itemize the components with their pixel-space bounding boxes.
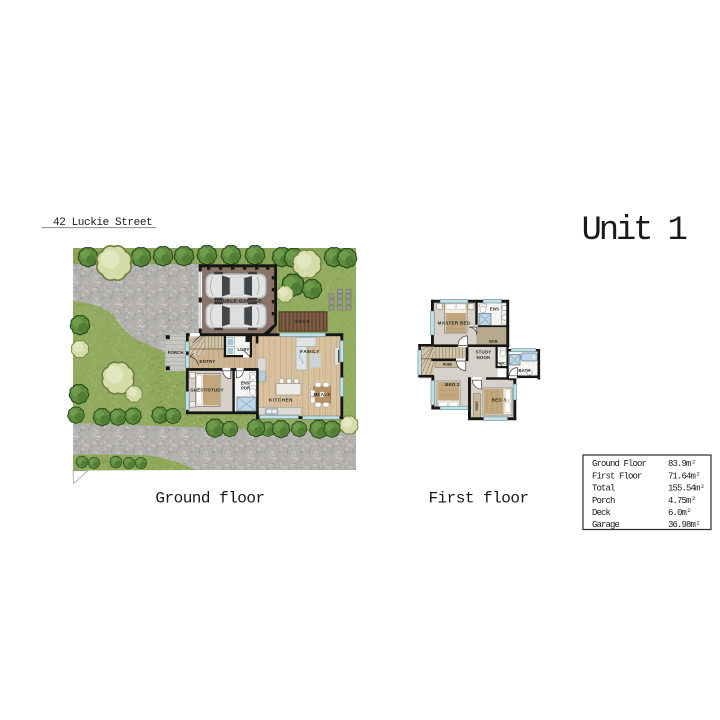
svg-text:Garage: Garage bbox=[592, 520, 620, 530]
svg-text:BED 2: BED 2 bbox=[445, 382, 460, 387]
svg-text:WC: WC bbox=[499, 360, 506, 365]
svg-text:KITCHEN: KITCHEN bbox=[269, 398, 293, 403]
svg-text:83.9m: 83.9m bbox=[668, 459, 691, 469]
svg-text:STUDY: STUDY bbox=[476, 349, 492, 354]
svg-text:ENS: ENS bbox=[490, 307, 500, 312]
svg-text:Deck: Deck bbox=[592, 508, 611, 518]
svg-text:PORCH: PORCH bbox=[168, 350, 184, 355]
svg-text:Unit 1: Unit 1 bbox=[582, 212, 687, 250]
svg-text:ROBE: ROBE bbox=[475, 401, 479, 410]
svg-text:ENTRY: ENTRY bbox=[199, 359, 215, 364]
svg-text:Total: Total bbox=[592, 484, 615, 494]
svg-text:6.0m: 6.0m bbox=[668, 508, 687, 518]
svg-text:4.75m: 4.75m bbox=[668, 496, 691, 506]
svg-text:NOOK: NOOK bbox=[477, 355, 492, 360]
svg-text:ROBE: ROBE bbox=[443, 363, 452, 367]
svg-text:Ground floor: Ground floor bbox=[155, 490, 264, 508]
svg-text:Ground Floor: Ground Floor bbox=[592, 459, 647, 469]
svg-text:GUEST/STUDY: GUEST/STUDY bbox=[190, 387, 223, 392]
svg-text:BATH: BATH bbox=[518, 368, 530, 373]
svg-text:155.54m: 155.54m bbox=[668, 484, 700, 494]
svg-text:MEALS: MEALS bbox=[314, 392, 331, 397]
svg-text:WIR: WIR bbox=[489, 339, 498, 344]
svg-text:LDRY: LDRY bbox=[237, 347, 249, 352]
svg-text:DECK: DECK bbox=[295, 319, 310, 324]
svg-text:71.64m: 71.64m bbox=[668, 471, 696, 481]
svg-text:MASTER BED: MASTER BED bbox=[438, 320, 471, 325]
svg-text:First floor: First floor bbox=[428, 490, 528, 508]
svg-text:DOUBLE GARAGE: DOUBLE GARAGE bbox=[215, 299, 262, 304]
svg-text:36.98m: 36.98m bbox=[668, 520, 696, 530]
svg-text:BED 3: BED 3 bbox=[492, 397, 507, 402]
svg-text:First Floor: First Floor bbox=[592, 471, 642, 481]
svg-text:PDR: PDR bbox=[241, 386, 250, 391]
svg-text:FAMILY: FAMILY bbox=[300, 349, 319, 354]
svg-text:Porch: Porch bbox=[592, 496, 615, 506]
